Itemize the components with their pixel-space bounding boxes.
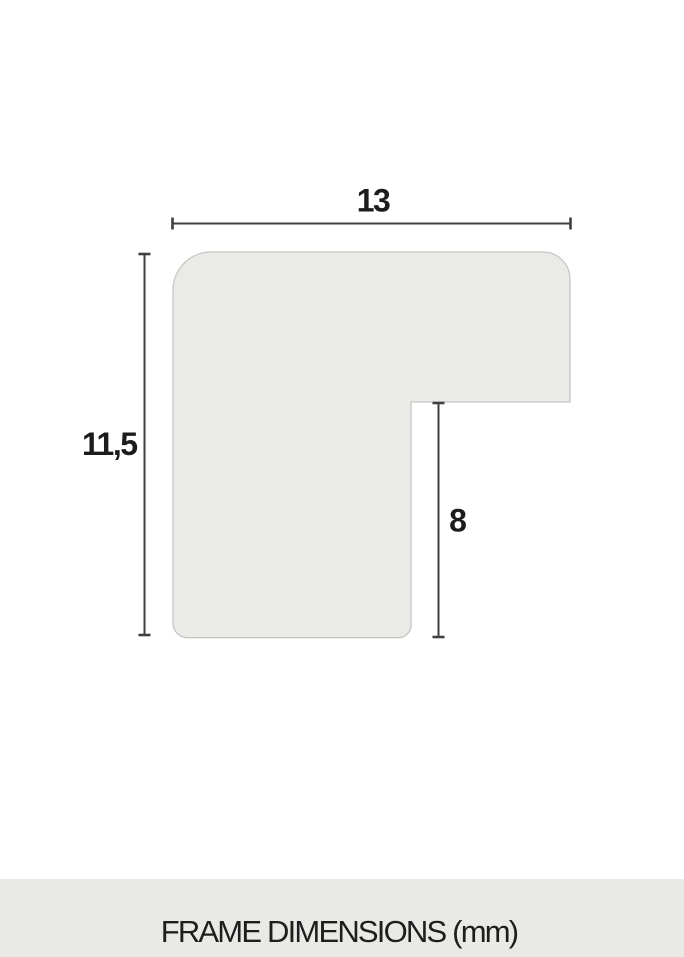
svg-text:8: 8 [449,503,467,539]
svg-text:13: 13 [357,183,390,219]
svg-text:FRAME DIMENSIONS (mm): FRAME DIMENSIONS (mm) [161,914,518,949]
svg-text:11,5: 11,5 [82,426,137,462]
